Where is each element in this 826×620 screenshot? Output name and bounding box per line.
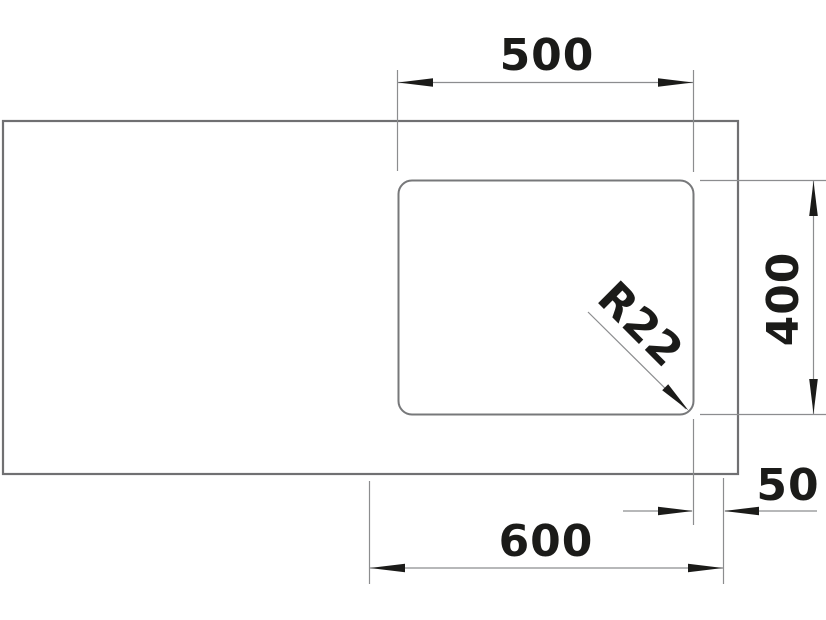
dim-offset-label: 50 <box>756 460 819 511</box>
dim-right-label: 400 <box>758 252 809 347</box>
installation-drawing: 500 400 R22 600 50 <box>0 0 826 620</box>
dim-top-label: 500 <box>500 30 595 81</box>
drawing-background <box>0 0 826 620</box>
drawing-canvas: 500 400 R22 600 50 <box>0 0 826 620</box>
dim-bottom-label: 600 <box>499 516 594 567</box>
